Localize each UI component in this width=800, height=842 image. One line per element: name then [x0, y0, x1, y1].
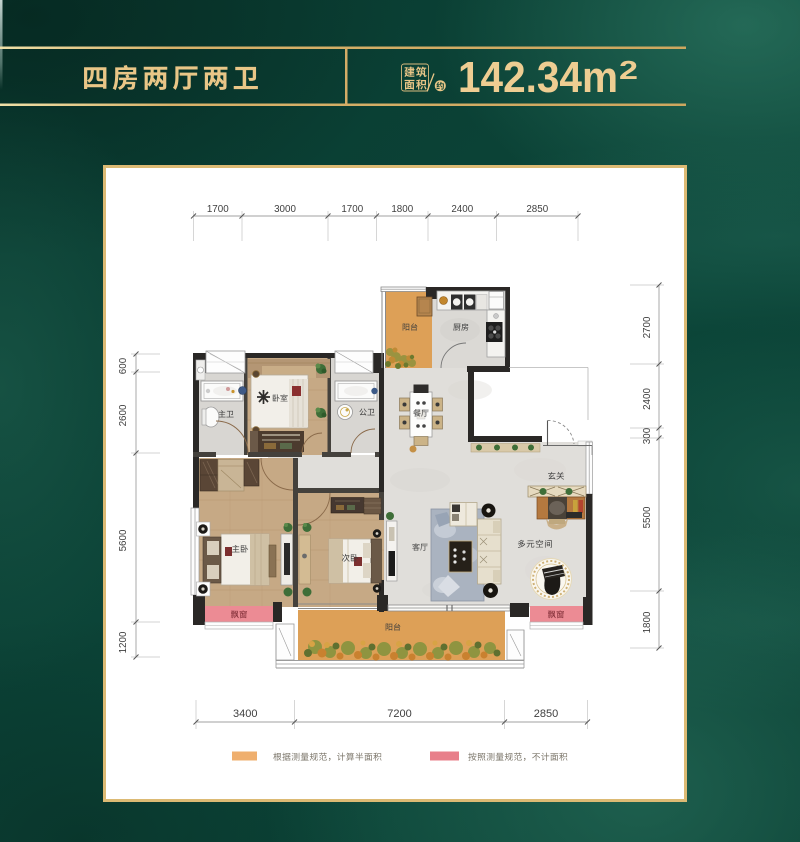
- svg-text:2850: 2850: [534, 708, 558, 720]
- svg-text:3400: 3400: [233, 708, 257, 720]
- svg-text:1800: 1800: [642, 611, 653, 633]
- svg-text:1800: 1800: [391, 204, 413, 215]
- svg-text:1700: 1700: [207, 204, 229, 215]
- svg-text:2400: 2400: [642, 388, 653, 410]
- svg-text:5600: 5600: [118, 529, 129, 551]
- svg-text:7200: 7200: [387, 708, 411, 720]
- svg-text:2: 2: [619, 55, 638, 85]
- svg-text:1700: 1700: [341, 204, 363, 215]
- svg-text:300: 300: [642, 427, 653, 444]
- svg-text:2400: 2400: [451, 204, 473, 215]
- svg-text:1200: 1200: [118, 631, 129, 653]
- svg-text:142.34m: 142.34m: [458, 53, 618, 102]
- svg-text:3000: 3000: [274, 204, 296, 215]
- svg-text:2850: 2850: [526, 204, 548, 215]
- svg-text:600: 600: [118, 357, 129, 374]
- svg-text:2700: 2700: [642, 316, 653, 338]
- svg-text:2600: 2600: [118, 404, 129, 426]
- svg-text:5500: 5500: [642, 506, 653, 528]
